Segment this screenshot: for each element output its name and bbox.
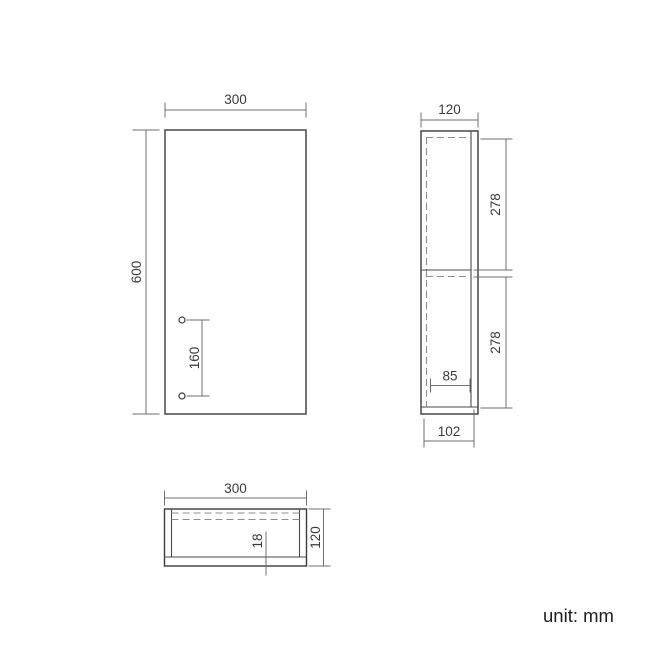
- front-height-dimension: 600: [129, 130, 159, 414]
- bottom-depth-label: 120: [308, 526, 323, 549]
- front-width-dimension: 300: [165, 92, 306, 117]
- hole-spacing-label: 160: [187, 347, 202, 370]
- front-height-label: 600: [129, 261, 144, 284]
- inner-depth-label: 102: [438, 424, 461, 439]
- mounting-hole-top: [179, 317, 185, 323]
- side-view: 120 278 278 85 102: [421, 102, 512, 447]
- bottom-width-dimension: 300: [165, 481, 307, 505]
- unit-note: unit: mm: [543, 605, 614, 626]
- bottom-depth-dimension: 120: [308, 509, 330, 566]
- side-depth-label: 120: [438, 102, 461, 117]
- lower-section-dimension: 278: [488, 277, 506, 408]
- bottom-width-label: 300: [224, 481, 247, 496]
- shelf-clearance-label: 85: [442, 369, 457, 384]
- panel-thickness-dimension: 18: [250, 532, 266, 575]
- front-view-outline: [165, 130, 306, 414]
- front-width-label: 300: [224, 92, 247, 107]
- upper-section-dimension: 278: [488, 139, 506, 270]
- front-view: 300 600 160: [129, 92, 306, 414]
- lower-section-label: 278: [488, 331, 503, 354]
- mounting-holes: [179, 317, 185, 399]
- bottom-view: 300 120 18: [165, 481, 331, 575]
- technical-drawing-svg: 300 600 160: [0, 0, 650, 650]
- hole-spacing-dimension: 160: [187, 320, 209, 396]
- inner-depth-dimension: 102: [424, 410, 474, 447]
- upper-section-label: 278: [488, 193, 503, 216]
- shelf-clearance-dimension: 85: [431, 369, 471, 393]
- mounting-hole-bottom: [179, 393, 185, 399]
- panel-thickness-label: 18: [250, 533, 265, 548]
- side-depth-dimension: 120: [421, 102, 478, 127]
- product-dimension-drawing: 300 600 160: [0, 0, 650, 650]
